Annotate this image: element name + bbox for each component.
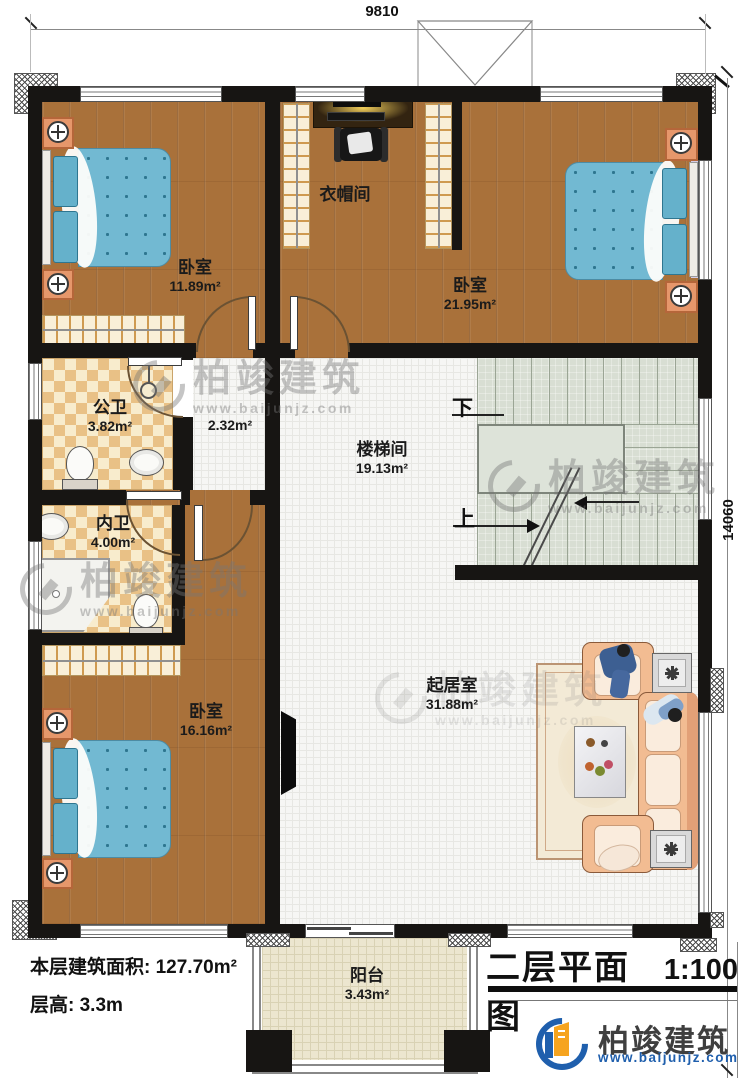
- dresser-chair-cushion: [347, 131, 374, 154]
- balcony-pillar: [246, 1030, 292, 1072]
- pillow: [53, 803, 78, 854]
- bedside-lamp-icon: [47, 273, 69, 295]
- title-rule-thin: [488, 1000, 738, 1001]
- room-label-bedroom-bottom: 卧室 16.16m²: [146, 702, 266, 738]
- dimension-height-label: 14060: [720, 491, 736, 549]
- bedside-lamp-icon: [670, 285, 692, 307]
- wall: [28, 490, 126, 505]
- hatch-pillar: [448, 933, 491, 947]
- room-label-cloakroom: 衣帽间: [295, 185, 395, 205]
- door-leaf: [128, 357, 182, 366]
- table-cup: [601, 740, 608, 747]
- window: [507, 924, 633, 938]
- dimension-extension: [30, 14, 31, 72]
- pillow: [53, 156, 78, 207]
- dimension-tick: [721, 66, 734, 79]
- sink-icon: [129, 449, 164, 476]
- hatch-pillar: [246, 933, 290, 947]
- brand-logo-building: [554, 1022, 569, 1056]
- brand-logo-window: [558, 1036, 565, 1038]
- table-flowers-icon: [595, 766, 605, 776]
- door-leaf: [194, 505, 203, 561]
- table-flowers-icon: [604, 760, 613, 769]
- wall: [265, 102, 280, 924]
- dimension-line-top: [30, 29, 706, 30]
- balcony-railing: [252, 1072, 478, 1074]
- bedside-lamp-icon: [46, 712, 68, 734]
- room-label-hallway: 2.32m²: [194, 417, 266, 433]
- stair-up-label: 上: [454, 503, 475, 533]
- bedside-lamp-icon: [670, 132, 692, 154]
- toilet-icon: [133, 594, 159, 628]
- wall: [633, 924, 712, 938]
- toilet-icon: [66, 446, 94, 481]
- sliding-door-panel: [307, 927, 351, 930]
- door-leaf: [126, 491, 182, 500]
- wardrobe: [42, 315, 185, 344]
- wardrobe: [425, 103, 452, 249]
- brand-logo-window: [558, 1030, 565, 1032]
- room-label-public-bath: 公卫 3.82m²: [58, 398, 162, 434]
- toilet-tank: [62, 479, 98, 490]
- wall: [698, 86, 712, 160]
- wall: [28, 630, 42, 938]
- person-head: [617, 644, 630, 657]
- door-leaf: [248, 296, 256, 350]
- pillow: [662, 224, 687, 275]
- wall: [452, 102, 462, 250]
- bed-headboard: [42, 742, 51, 856]
- title-rule-thick: [488, 986, 738, 992]
- window: [698, 160, 712, 280]
- table-flowers-icon: [585, 762, 594, 771]
- sofa-cushion: [645, 754, 681, 806]
- pillow: [53, 748, 78, 799]
- wall: [365, 86, 540, 102]
- window: [540, 86, 663, 102]
- door-leaf: [290, 296, 298, 350]
- table-cup: [586, 738, 595, 747]
- wall: [28, 86, 42, 363]
- floor-plan: 9810 14060 柏竣建筑 www.baijunjz.com 柏竣建筑 ww…: [0, 0, 750, 1088]
- sliding-door-panel: [349, 932, 393, 935]
- room-label-living: 起居室 31.88m²: [392, 676, 512, 712]
- dimension-width-label: 9810: [352, 3, 412, 21]
- room-label-stairwell: 楼梯间 19.13m²: [328, 440, 436, 476]
- room-label-private-bath: 内卫 4.00m²: [61, 514, 165, 550]
- dresser-item: [327, 112, 385, 121]
- bedside-lamp-icon: [47, 121, 69, 143]
- window: [295, 86, 365, 102]
- hatch-pillar: [710, 912, 724, 928]
- bed-headboard: [689, 162, 698, 277]
- dimension-tick: [25, 17, 38, 30]
- wall: [348, 343, 698, 358]
- wall: [28, 420, 42, 541]
- window: [698, 398, 712, 520]
- tv-icon: [281, 711, 296, 795]
- stair-landing: [477, 424, 625, 494]
- person-head: [668, 708, 682, 722]
- wall: [222, 86, 295, 102]
- wall: [455, 565, 698, 580]
- balcony-pillar: [444, 1030, 490, 1072]
- bed-headboard: [42, 150, 51, 265]
- window: [28, 541, 42, 630]
- coffee-table: [574, 726, 626, 798]
- wall: [250, 490, 265, 505]
- room-label-bedroom-top-right: 卧室 21.95m²: [410, 276, 530, 312]
- brand-website: www.baijunjz.com: [598, 1050, 739, 1065]
- hatch-pillar: [710, 668, 724, 713]
- pillow: [662, 168, 687, 219]
- wardrobe: [283, 103, 310, 249]
- window: [698, 712, 712, 913]
- dimension-extension: [705, 14, 706, 74]
- stair-up-arrowhead-icon: [527, 519, 540, 533]
- pillow: [53, 211, 78, 263]
- stair-down-label: 下: [452, 392, 473, 422]
- wall: [698, 280, 712, 398]
- stair-treads-upper: [477, 358, 698, 424]
- stair-treads-lower: [477, 494, 698, 565]
- brand-logo-building: [545, 1032, 553, 1058]
- dimension-line-right: [727, 78, 728, 1078]
- wall: [28, 633, 185, 645]
- floor-area-text: 本层建筑面积: 127.70m²: [30, 952, 390, 979]
- wall: [42, 343, 196, 358]
- roof-gable-icon: [415, 20, 535, 87]
- window: [80, 86, 222, 102]
- room-label-bedroom-top-left: 卧室 11.89m²: [130, 258, 260, 294]
- wall: [28, 924, 80, 938]
- drawing-scale: 1:100: [664, 954, 738, 987]
- shower-drain: [52, 590, 60, 598]
- wardrobe: [42, 645, 181, 676]
- window: [80, 924, 228, 938]
- floor-height-text: 层高: 3.3m: [30, 990, 390, 1017]
- stair-down-arrow-line: [587, 501, 639, 503]
- bedside-lamp-icon: [46, 862, 68, 884]
- stair-treads-turn: [625, 424, 698, 494]
- window: [28, 363, 42, 420]
- stair-down-arrowhead-icon: [574, 496, 587, 510]
